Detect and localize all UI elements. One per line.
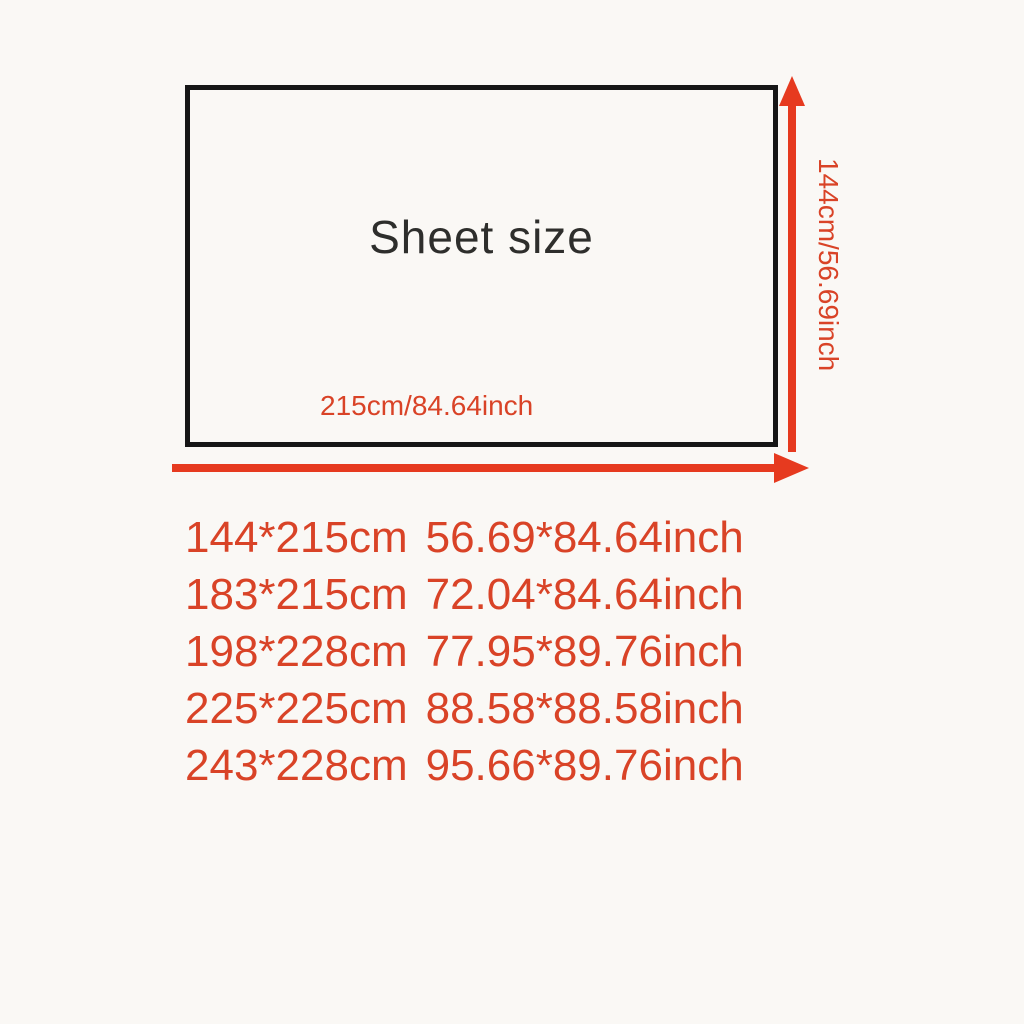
size-row: 183*215cm 72.04*84.64inch xyxy=(185,566,744,623)
sheet-diagram-box: Sheet size 215cm/84.64inch xyxy=(185,85,778,447)
size-cm-value: 198*228cm xyxy=(185,623,408,680)
size-chart-image: Sheet size 215cm/84.64inch 144cm/56.69in… xyxy=(0,0,1024,1024)
height-dimension-label: 144cm/56.69inch xyxy=(812,158,844,371)
width-arrow-icon xyxy=(170,451,810,485)
size-inch-value: 56.69*84.64inch xyxy=(426,509,744,566)
size-cm-value: 183*215cm xyxy=(185,566,408,623)
size-inch-value: 88.58*88.58inch xyxy=(426,680,744,737)
size-cm-value: 225*225cm xyxy=(185,680,408,737)
size-inch-value: 72.04*84.64inch xyxy=(426,566,744,623)
size-inch-value: 95.66*89.76inch xyxy=(426,737,744,794)
size-cm-value: 243*228cm xyxy=(185,737,408,794)
size-list: 144*215cm 56.69*84.64inch 183*215cm 72.0… xyxy=(185,509,744,794)
size-row: 243*228cm 95.66*89.76inch xyxy=(185,737,744,794)
size-row: 144*215cm 56.69*84.64inch xyxy=(185,509,744,566)
size-cm-value: 144*215cm xyxy=(185,509,408,566)
size-row: 225*225cm 88.58*88.58inch xyxy=(185,680,744,737)
size-inch-value: 77.95*89.76inch xyxy=(426,623,744,680)
size-row: 198*228cm 77.95*89.76inch xyxy=(185,623,744,680)
width-dimension-label: 215cm/84.64inch xyxy=(320,390,533,422)
sheet-size-label: Sheet size xyxy=(190,210,773,264)
height-arrow-icon xyxy=(776,76,808,454)
